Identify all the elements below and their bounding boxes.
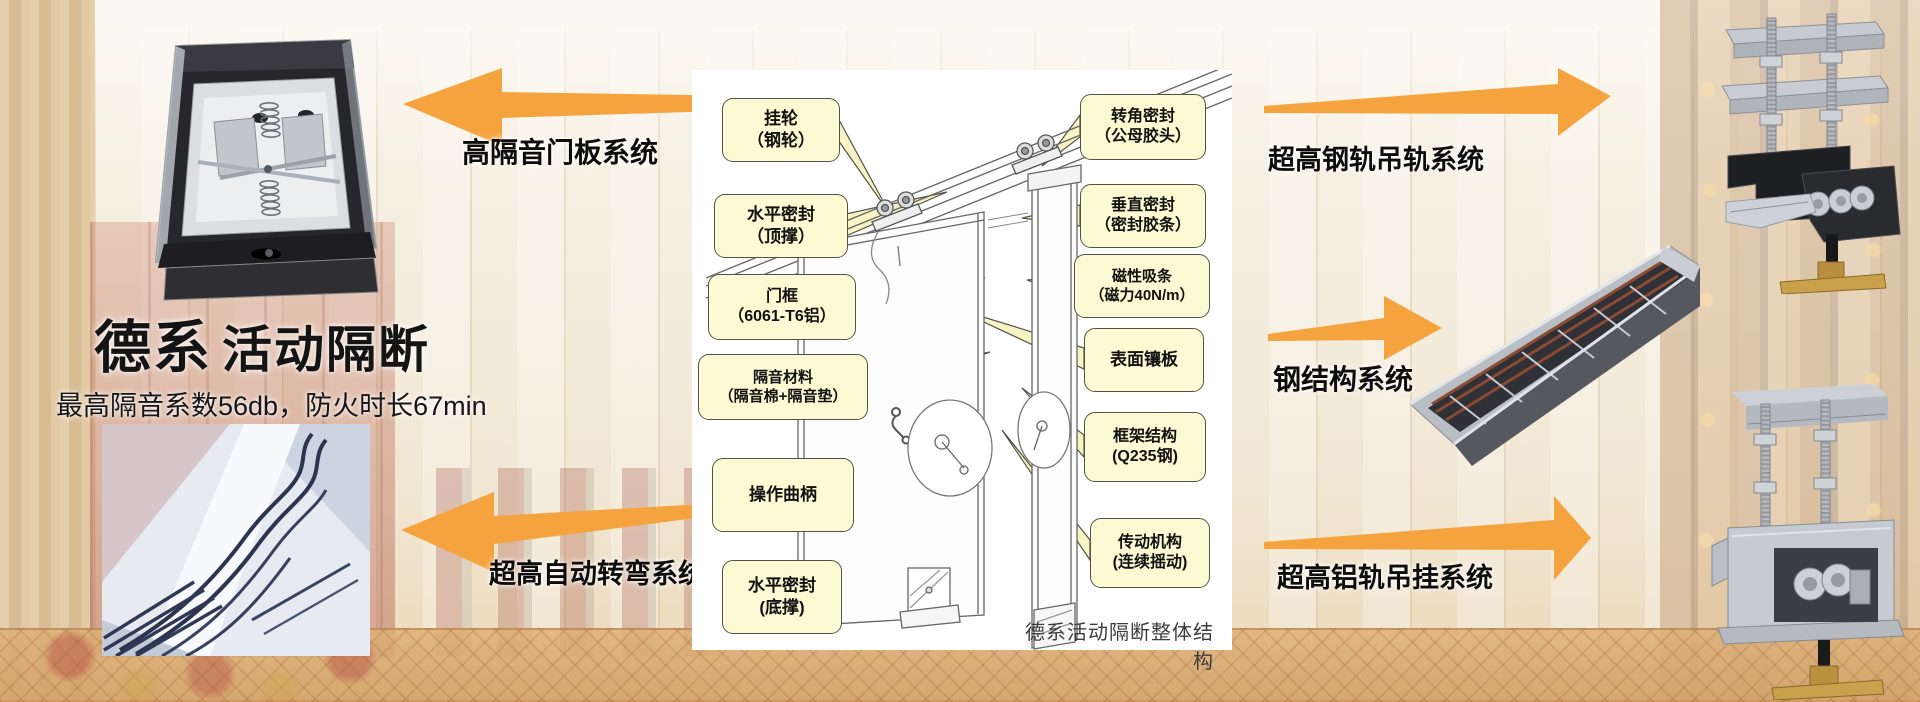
callout-transmission-mechanism: 传动机构 (连续摇动) <box>1090 518 1210 588</box>
callout-horizontal-seal-bottom: 水平密封 (底撑) <box>722 560 842 634</box>
label-auto-turn-system: 超高自动转弯系统 <box>489 552 705 591</box>
label-steel-rail-system: 超高钢轨吊轨系统 <box>1268 138 1484 177</box>
callout-magnetic-strip: 磁性吸条 （磁力40N/m） <box>1074 254 1210 318</box>
photo-door-panel-mechanism <box>138 6 383 306</box>
photo-alu-rail-hanger <box>1698 378 1913 700</box>
callout-door-frame: 门框 （6061-T6铝） <box>708 274 856 340</box>
photo-curved-track <box>102 424 370 656</box>
label-door-panel-system: 高隔音门板系统 <box>462 131 658 171</box>
diagram-caption: 德系活动隔断整体结构 <box>1008 616 1214 674</box>
page-title-secondary: 活动隔断 <box>222 322 430 378</box>
callout-operating-crank: 操作曲柄 <box>712 458 854 532</box>
photo-steel-rail-hanger <box>1698 4 1913 294</box>
page-title-primary: 德系 <box>94 316 212 380</box>
callout-frame-structure: 框架结构 (Q235钢) <box>1084 412 1206 482</box>
page-title: 德系活动隔断 <box>94 302 474 384</box>
callout-hanging-wheel: 挂轮 （钢轮） <box>722 98 840 162</box>
callout-corner-seal: 转角密封 （公母胶头） <box>1080 94 1206 160</box>
callout-horizontal-seal-top: 水平密封 （顶撑） <box>714 194 848 258</box>
label-steel-structure-system: 钢结构系统 <box>1273 358 1413 398</box>
arrow-right-steel-rail-icon <box>1262 66 1612 148</box>
callout-surface-panel: 表面镶板 <box>1084 328 1204 392</box>
callout-vertical-seal: 垂直密封 （密封胶条） <box>1080 184 1206 248</box>
page-subtitle: 最高隔音系数56db，防火时长67min <box>56 384 526 423</box>
label-alu-rail-system: 超高铝轨吊挂系统 <box>1277 556 1493 595</box>
callout-insulation-material: 隔音材料 （隔音棉+隔音垫） <box>698 354 868 420</box>
photo-steel-structure <box>1402 228 1702 468</box>
